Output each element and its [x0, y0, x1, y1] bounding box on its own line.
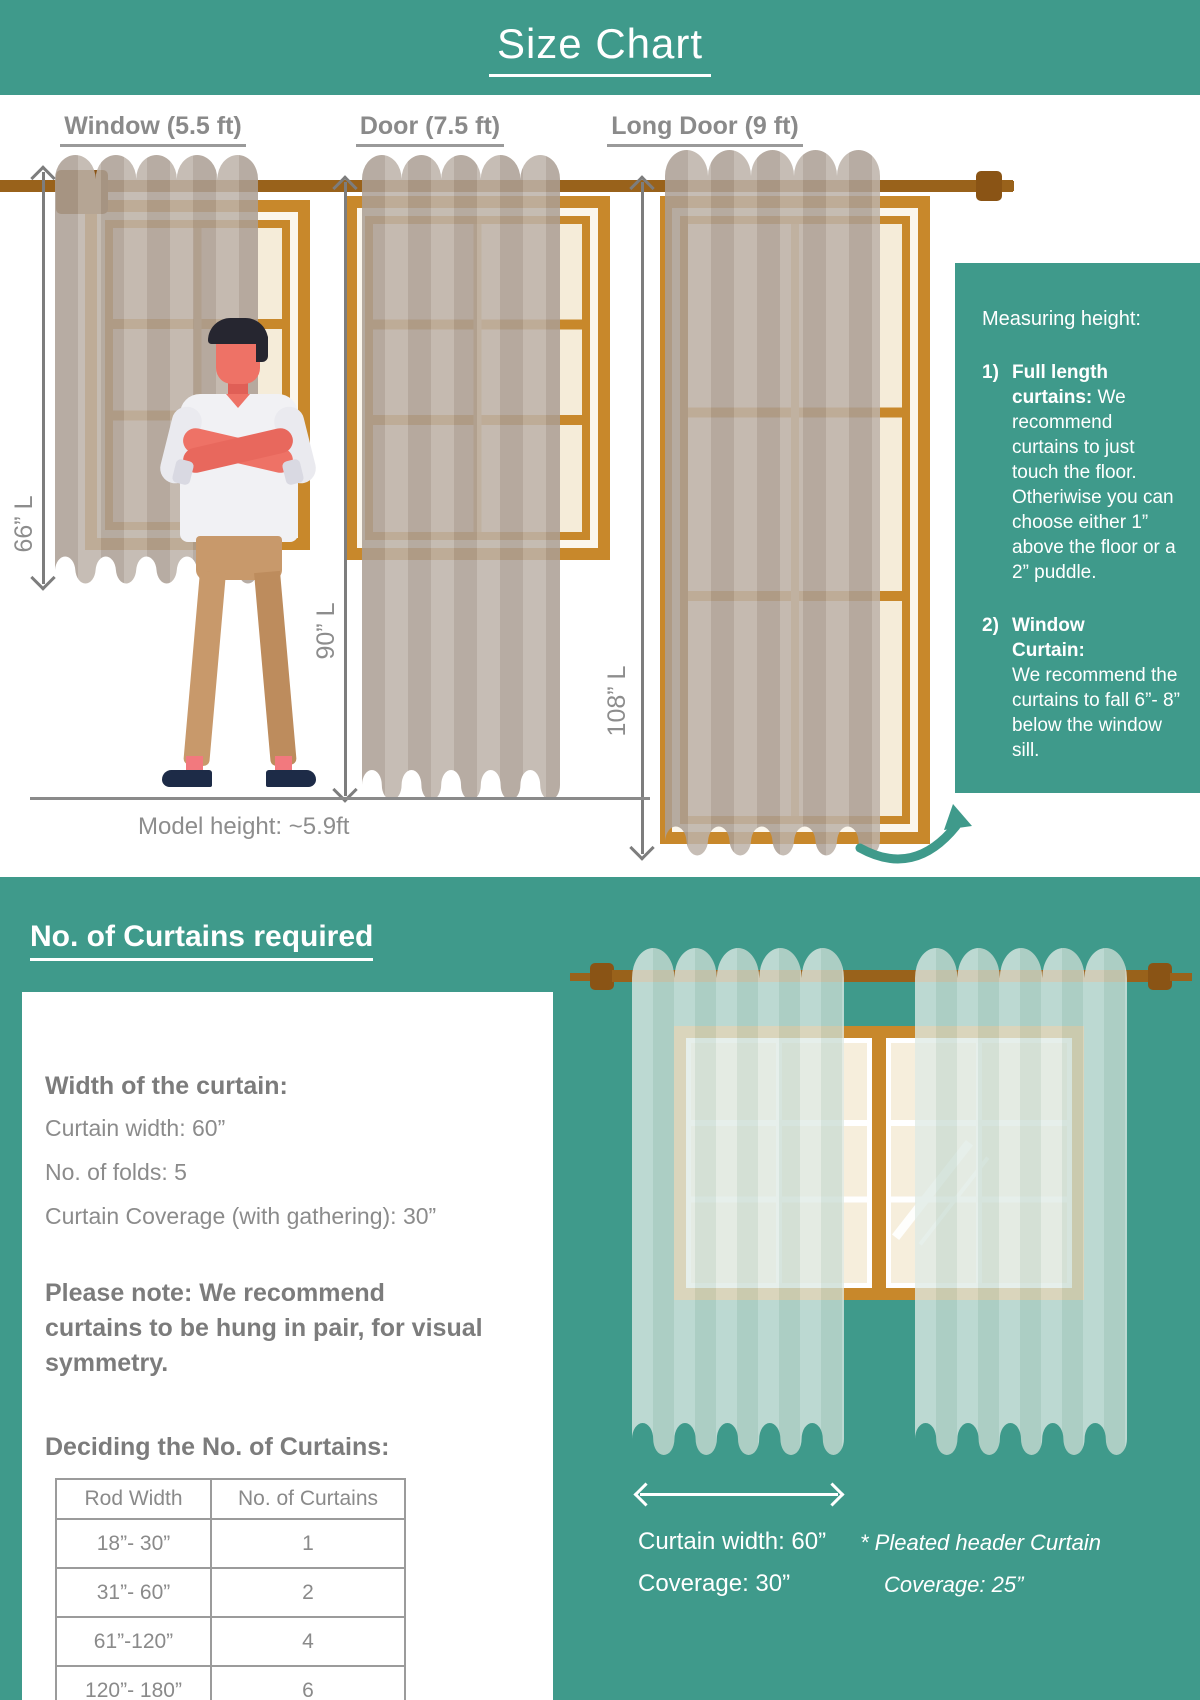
size-chart-infographic: Size Chart Window (5.5 ft) Door (7.5 ft)…: [0, 0, 1200, 1700]
floor-line: [30, 797, 650, 800]
curtains-required-heading: No. of Curtains required: [30, 920, 373, 954]
sheer-curtain-left: [632, 948, 844, 1455]
model-figure: [158, 318, 318, 788]
rod-width-value: 18”- 30”: [56, 1519, 211, 1568]
spec-folds: No. of folds: 5: [45, 1159, 525, 1186]
curtain-count-value: 1: [211, 1519, 405, 1568]
model-leg-right: [254, 571, 297, 767]
item-1-text: We recommend curtains to just touch the …: [1012, 387, 1176, 583]
model-shoe-left: [162, 770, 212, 787]
arrow-108in-line: [641, 182, 644, 854]
spec-curtain-width: Curtain width: 60”: [45, 1115, 525, 1142]
table-row: 31”- 60” 2: [56, 1568, 405, 1617]
model-leg-left: [183, 571, 226, 767]
curtain-count-value: 4: [211, 1617, 405, 1666]
spec-coverage: Curtain Coverage (with gathering): 30”: [45, 1203, 525, 1230]
curtain-door: [362, 155, 560, 800]
label-long-door: Long Door (9 ft): [600, 112, 810, 141]
rod2-cap-left: [590, 963, 614, 990]
rod-width-value: 31”- 60”: [56, 1568, 211, 1617]
item-2-bold: Window Curtain:: [1012, 613, 1184, 663]
table-title: Deciding the No. of Curtains:: [45, 1433, 525, 1462]
model-height-caption: Model height: ~5.9ft: [138, 813, 349, 841]
length-label-108: 108” L: [603, 636, 633, 766]
pleated-note-line2: Coverage: 25”: [884, 1572, 1023, 1598]
rod-width-value: 61”-120”: [56, 1617, 211, 1666]
curtain-count-value: 6: [211, 1666, 405, 1700]
label-door: Door (7.5 ft): [330, 112, 530, 141]
table-header-row: Rod Width No. of Curtains: [56, 1479, 405, 1519]
curtain-long-door: [665, 150, 880, 857]
length-label-66: 66” L: [10, 459, 40, 589]
pair-note: Please note: We recommend curtains to be…: [45, 1276, 485, 1381]
measuring-height-title: Measuring height:: [982, 307, 1184, 332]
measuring-height-box: Measuring height: 1) Full length curtain…: [955, 263, 1200, 793]
arrow-66in-line: [42, 172, 45, 584]
item-2-body: Window Curtain:We recommend the curtains…: [1012, 613, 1184, 763]
table-row: 120”- 180” 6: [56, 1666, 405, 1700]
width-arrow-line: [640, 1493, 838, 1496]
item-2-text: We recommend the curtains to fall 6”- 8”…: [1012, 665, 1180, 761]
table-row: 18”- 30” 1: [56, 1519, 405, 1568]
page-title: Size Chart: [0, 20, 1200, 68]
item-2-number: 2): [982, 613, 1012, 763]
model-shoe-right: [266, 770, 316, 787]
arrow-90in: [332, 178, 358, 800]
curtain-width-label: Curtain width: 60”: [638, 1528, 826, 1556]
sheer-curtain-right: [915, 948, 1127, 1455]
col-rod-width: Rod Width: [56, 1479, 211, 1519]
curtain-count-value: 2: [211, 1568, 405, 1617]
curtain-count-table: Rod Width No. of Curtains 18”- 30” 1 31”…: [55, 1478, 406, 1700]
item-1-body: Full length curtains: We recommend curta…: [1012, 360, 1184, 585]
rod-stub-right: [1002, 181, 1014, 191]
width-title: Width of the curtain:: [45, 1072, 525, 1101]
item-1-number: 1): [982, 360, 1012, 585]
coverage-label: Coverage: 30”: [638, 1570, 790, 1598]
label-window: Window (5.5 ft): [40, 112, 266, 141]
rod2-cap-right: [1148, 963, 1172, 990]
col-no-curtains: No. of Curtains: [211, 1479, 405, 1519]
measuring-item-1: 1) Full length curtains: We recommend cu…: [982, 360, 1184, 585]
item-1-bold: Full length curtains:: [1012, 362, 1108, 408]
measuring-item-2: 2) Window Curtain:We recommend the curta…: [982, 613, 1184, 763]
table-row: 61”-120” 4: [56, 1617, 405, 1666]
arrow-90in-line: [344, 182, 347, 796]
info-card: Width of the curtain: Curtain width: 60”…: [22, 992, 553, 1700]
pleated-note-line1: * Pleated header Curtain: [860, 1530, 1101, 1556]
rod-width-value: 120”- 180”: [56, 1666, 211, 1700]
rod2-stub-right: [1170, 973, 1192, 981]
rod-cap-right: [976, 171, 1002, 201]
curved-arrow-icon: [850, 798, 1000, 873]
width-arrow: [636, 1483, 842, 1505]
model-hair-side: [256, 332, 268, 362]
